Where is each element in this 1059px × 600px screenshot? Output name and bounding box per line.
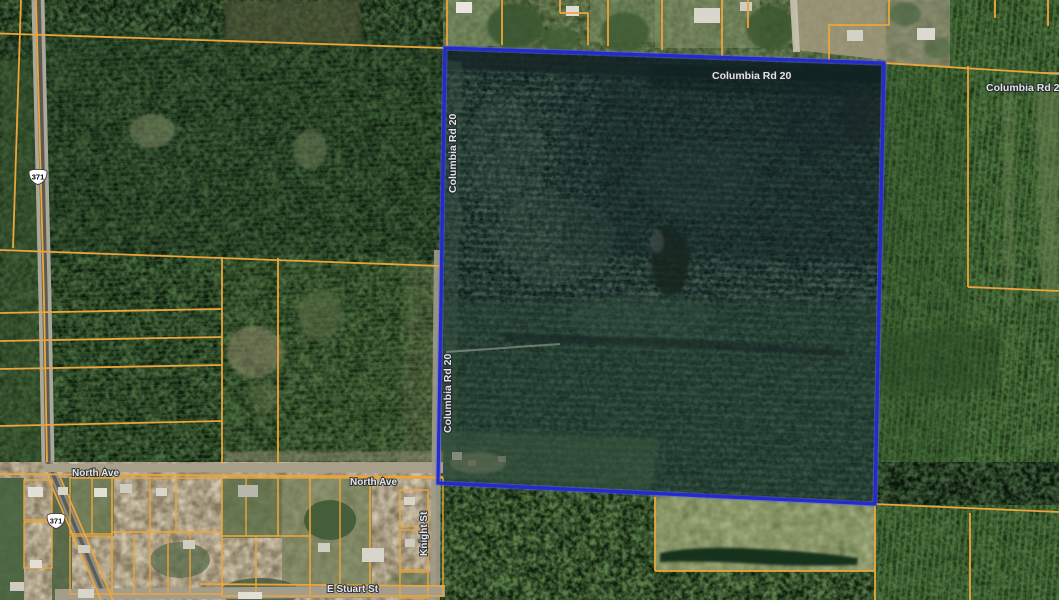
svg-text:North Ave: North Ave: [72, 468, 119, 479]
svg-text:Columbia Rd 20: Columbia Rd 20: [442, 353, 454, 433]
svg-text:E Stuart St: E Stuart St: [327, 584, 379, 595]
svg-text:North Ave: North Ave: [350, 477, 397, 488]
svg-text:Knight St: Knight St: [419, 511, 430, 556]
svg-text:Columbia Rd 20: Columbia Rd 20: [712, 70, 792, 82]
svg-text:Columbia Rd 20: Columbia Rd 20: [986, 82, 1059, 94]
svg-text:371: 371: [32, 173, 45, 182]
svg-text:Columbia Rd 20: Columbia Rd 20: [447, 113, 459, 193]
svg-text:371: 371: [50, 517, 63, 526]
